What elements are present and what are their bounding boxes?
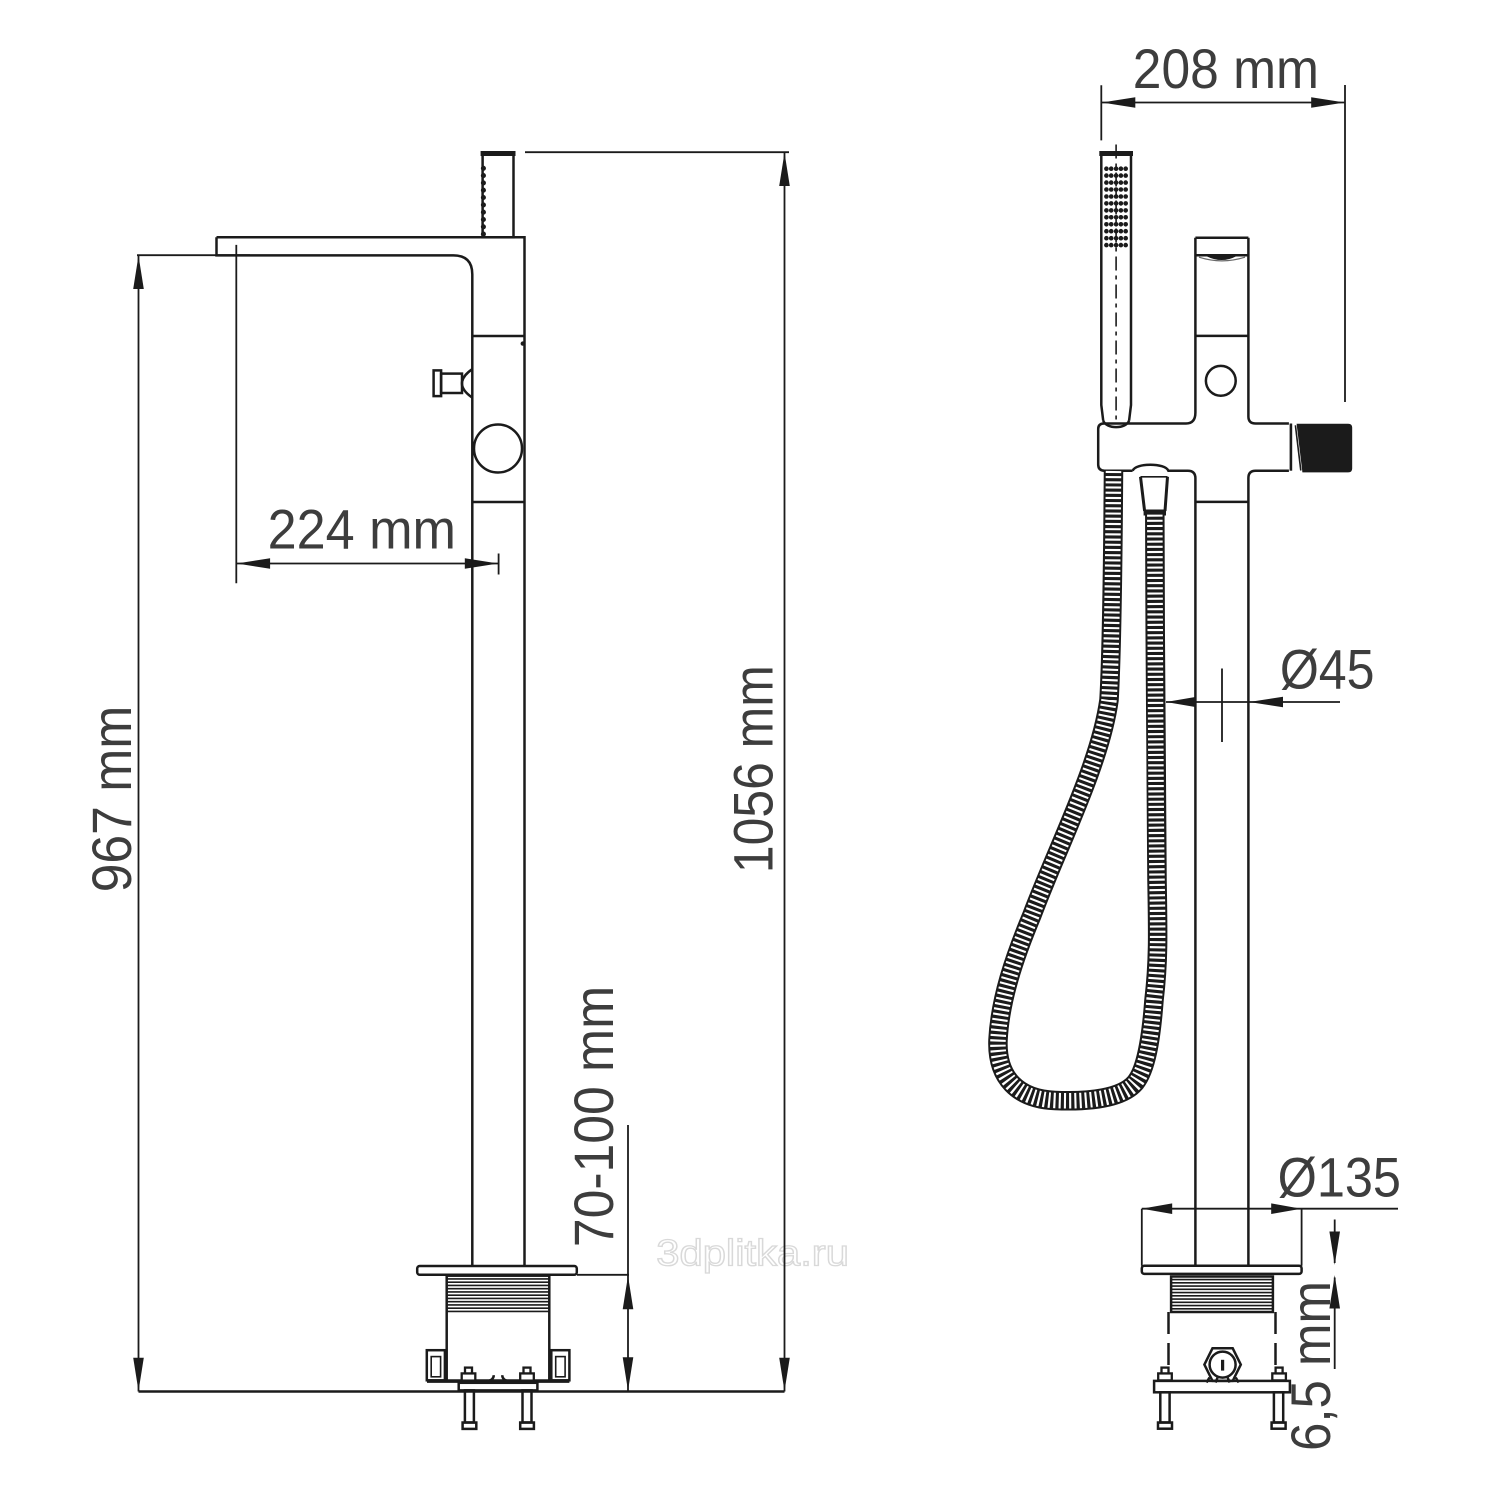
svg-text:Ø45: Ø45 [1280, 637, 1375, 700]
svg-text:224 mm: 224 mm [268, 498, 456, 561]
svg-text:1056 mm: 1056 mm [722, 665, 785, 873]
svg-text:70-100 mm: 70-100 mm [562, 986, 625, 1247]
svg-text:6,5 mm: 6,5 mm [1279, 1281, 1342, 1451]
svg-text:208 mm: 208 mm [1133, 37, 1319, 100]
svg-text:967 mm: 967 mm [80, 706, 143, 893]
svg-text:3dplitka.ru: 3dplitka.ru [656, 1233, 849, 1274]
svg-text:Ø135: Ø135 [1278, 1145, 1401, 1208]
